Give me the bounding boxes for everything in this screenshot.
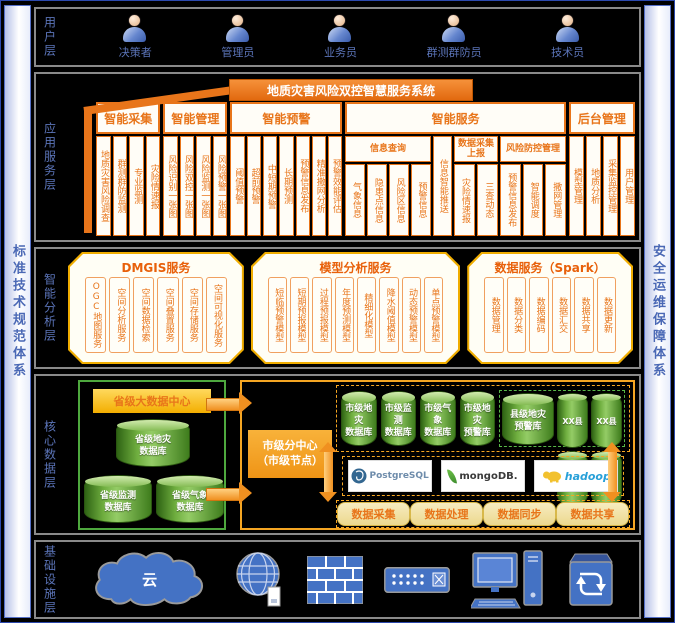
user-roles: 决策者 管理员 业务员 群测群防员 技术员 <box>64 9 639 65</box>
user-layer: 用户层 决策者 管理员 业务员 群测群防员 技术员 <box>34 7 641 67</box>
function-chip: 数据共享 <box>556 502 629 526</box>
analysis-column: 年度预测模型 <box>335 277 354 353</box>
architecture-diagram: 标准技术规范体系 安全运维保障体系 用户层 决策者 管理员 业务员 群测群防员 <box>0 0 675 623</box>
city-database-row: 市级地灾 数据库 市级监测 数据库 市级气象 数据库 市级地灾 预警库 县级地灾… <box>336 385 630 452</box>
app-column: 专业监测 <box>129 136 144 236</box>
firewall-icon <box>307 556 363 604</box>
core-layer-label: 核心数据层 <box>36 376 64 533</box>
model-analysis-container: 模型分析服务 短临预警模型 短期预报模型 过程预报模型 年度预测模型 精细化模型… <box>251 252 460 364</box>
analysis-column: 数据汇交 <box>552 277 571 353</box>
app-column: 风险监测一张图 <box>196 136 211 236</box>
platform-row: PostgreSQL mongoDB. hadoop <box>342 456 624 496</box>
sync-arrow-left <box>324 452 333 492</box>
flow-arrow-right-bottom <box>206 488 240 501</box>
dmgis-service-container: DMGIS服务 OGC地图服务 空间分析服务 空间数据检索 空间叠置服务 空间存… <box>68 252 244 364</box>
group-smart-warning: 智能预警 阈值预警 超前预警 中短期预警 长期预测 预警信息发布 精准撒网分析 … <box>230 102 342 236</box>
analysis-column: 短期预报模型 <box>290 277 309 353</box>
analysis-layer: 智能分析层 DMGIS服务 OGC地图服务 空间分析服务 空间数据检索 空间叠置… <box>34 247 641 369</box>
role-administrator: 管理员 <box>221 15 254 60</box>
app-column: 气象信息 <box>345 164 365 236</box>
container-title: 模型分析服务 <box>253 257 458 277</box>
city-center-label: 市级分中心 （市级节点） <box>248 430 332 478</box>
app-column: 预警效能评估 <box>328 136 342 236</box>
app-column: 模型管理 <box>569 136 584 236</box>
core-data-layer: 核心数据层 省级大数据中心 省级地灾 数据库 省级监测 数据库 省级气象 数据库… <box>34 374 641 535</box>
app-column: 超前预警 <box>247 136 261 236</box>
data-function-row: 数据采集 数据处理 数据同步 数据共享 <box>336 500 630 528</box>
role-label: 决策者 <box>119 44 152 60</box>
group-title: 智能管理 <box>163 102 227 134</box>
app-groups: 智能采集 地质灾害风险调查 群测群防监测 专业监测 灾险情速报 智能管理 风险识… <box>96 102 635 236</box>
analysis-column: OGC地图服务 <box>85 277 106 353</box>
subgroup-title: 信息查询 <box>345 136 430 162</box>
system-title-banner: 地质灾害风险双控智慧服务系统 <box>229 79 473 101</box>
server-rack-icon <box>384 567 450 593</box>
analysis-column: 精细化模型 <box>357 277 376 353</box>
analysis-column: 数据编码 <box>529 277 548 353</box>
mongodb-leaf-icon <box>447 468 457 484</box>
app-column: 风险区信息 <box>389 164 409 236</box>
group-title: 智能预警 <box>230 102 342 134</box>
app-column: 预警信息 <box>411 164 431 236</box>
container-title: DMGIS服务 <box>70 257 242 277</box>
role-decision-maker: 决策者 <box>119 15 152 60</box>
role-label: 群测群防员 <box>427 44 482 60</box>
person-icon <box>442 15 466 42</box>
analysis-column: 过程预报模型 <box>312 277 331 353</box>
analysis-column: 空间可视化服务 <box>206 277 227 353</box>
analysis-column: 数据更新 <box>597 277 616 353</box>
person-icon <box>556 15 580 42</box>
app-column: 隐患点信息 <box>367 164 387 236</box>
subgroup-risk-control: 风险防控管理 预警信息发布 智能调度 撒网管理 <box>500 136 566 236</box>
database-cylinder: 省级监测 数据库 <box>84 475 152 523</box>
app-column: 灾险情速报 <box>146 136 161 236</box>
sync-arrow-right <box>608 452 617 492</box>
hadoop-elephant-icon <box>542 469 562 483</box>
app-column: 预警信息发布 <box>296 136 310 236</box>
app-layer-label: 应用服务层 <box>36 74 64 240</box>
data-service-spark-container: 数据服务（Spark） 数据管理 数据分类 数据编码 数据汇交 数据共享 数据更… <box>467 252 633 364</box>
analysis-column: 空间分析服务 <box>109 277 130 353</box>
analysis-column: 动态预警模型 <box>402 277 421 353</box>
database-cylinder: 省级地灾 数据库 <box>116 419 190 467</box>
database-cylinder: 市级监测 数据库 <box>381 391 417 446</box>
app-column: 风险识别一张图 <box>163 136 178 236</box>
app-column: 地质灾害风险调查 <box>96 136 111 236</box>
role-clerk: 业务员 <box>324 15 357 60</box>
analysis-layer-label: 智能分析层 <box>36 249 64 367</box>
subgroup-data-report: 数据采集上报 灾险情速报 三查动态 <box>454 136 499 236</box>
group-title: 智能服务 <box>345 102 565 134</box>
analysis-column: 降水阈值模型 <box>379 277 398 353</box>
container-title: 数据服务（Spark） <box>469 257 631 277</box>
database-cylinder: 县级地灾 预警库 <box>502 393 554 445</box>
province-center-title: 省级大数据中心 <box>93 389 211 413</box>
database-cylinder: 市级地灾 数据库 <box>341 391 377 446</box>
database-cylinder: 市级气象 数据库 <box>420 391 456 446</box>
database-cylinder: XX县 <box>557 393 588 448</box>
subgroup-title: 数据采集上报 <box>454 136 499 162</box>
group-smart-collection: 智能采集 地质灾害风险调查 群测群防监测 专业监测 灾险情速报 <box>96 102 160 236</box>
role-label: 业务员 <box>324 44 357 60</box>
left-rail: 标准技术规范体系 <box>4 5 31 618</box>
postgresql-elephant-icon <box>351 468 367 484</box>
database-cylinder: 市级地灾 预警库 <box>460 391 496 446</box>
function-chip: 数据采集 <box>337 502 410 526</box>
city-sub-center: 市级分中心 （市级节点） 市级地灾 数据库 市级监测 数据库 市级气象 数据库 … <box>240 380 635 530</box>
subgroup-title: 风险防控管理 <box>500 136 566 162</box>
group-backend-admin: 后台管理 模型管理 地质分析 采集监控管理 用户管理 <box>569 102 635 236</box>
analysis-column: 数据管理 <box>484 277 503 353</box>
infra-layer-label: 基础设施层 <box>36 542 64 617</box>
app-column: 中短期预警 <box>263 136 277 236</box>
app-column: 撒网管理 <box>545 164 566 236</box>
role-monitoring-member: 群测群防员 <box>427 15 482 60</box>
left-rail-label: 标准技术规范体系 <box>8 244 27 380</box>
app-column: 风险预警一张图 <box>213 136 228 236</box>
cloud-icon: 云 <box>87 549 213 611</box>
group-title: 后台管理 <box>569 102 635 134</box>
analysis-column: 短临预警模型 <box>268 277 287 353</box>
flow-arrow-right-top <box>206 398 240 411</box>
person-icon <box>123 15 147 42</box>
cloud-label: 云 <box>87 569 213 590</box>
province-big-data-center: 省级大数据中心 省级地灾 数据库 省级监测 数据库 省级气象 数据库 <box>78 380 226 530</box>
app-column: 群测群防监测 <box>113 136 128 236</box>
group-smart-service: 智能服务 信息查询 气象信息 隐患点信息 风险区信息 预警信息 信息智能推送 <box>345 102 565 236</box>
app-column: 采集监控管理 <box>603 136 618 236</box>
mongodb-logo: mongoDB. <box>441 460 525 492</box>
app-column: 风险双控一张图 <box>180 136 195 236</box>
app-column: 阈值预警 <box>230 136 244 236</box>
app-column: 长期预测 <box>279 136 293 236</box>
analysis-column: 空间叠置服务 <box>157 277 178 353</box>
analysis-column: 数据共享 <box>574 277 593 353</box>
database-cylinder: XX县 <box>591 393 622 448</box>
person-icon <box>328 15 352 42</box>
app-column: 精准撒网分析 <box>312 136 326 236</box>
right-rail: 安全运维保障体系 <box>644 5 671 618</box>
function-chip: 数据同步 <box>483 502 556 526</box>
analysis-column: 空间数据检索 <box>133 277 154 353</box>
internet-globe-icon <box>234 551 286 609</box>
app-column: 智能调度 <box>523 164 544 236</box>
app-column: 用户管理 <box>620 136 635 236</box>
desktop-computer-icon <box>471 549 545 611</box>
analysis-column: 数据分类 <box>507 277 526 353</box>
role-label: 技术员 <box>551 44 584 60</box>
banner-ribbon-vertical <box>84 107 92 233</box>
infrastructure-layer: 基础设施层 云 <box>34 540 641 619</box>
right-rail-label: 安全运维保障体系 <box>648 244 667 380</box>
user-layer-label: 用户层 <box>36 9 64 65</box>
app-column: 灾险情速报 <box>454 164 475 236</box>
app-column-info-push: 信息智能推送 <box>433 136 452 236</box>
app-service-layer: 应用服务层 地质灾害风险双控智慧服务系统 智能采集 地质灾害风险调查 群测群防监… <box>34 72 641 242</box>
subgroup-info-query: 信息查询 气象信息 隐患点信息 风险区信息 预警信息 <box>345 136 430 236</box>
county-database-group: 县级地灾 预警库 XX县 XX县 XX县 XX县 <box>499 390 625 447</box>
network-switch-icon <box>566 552 616 608</box>
app-column: 地质分析 <box>586 136 601 236</box>
app-column: 三查动态 <box>477 164 498 236</box>
analysis-column: 空间存储服务 <box>182 277 203 353</box>
analysis-column: 单点预警模型 <box>424 277 443 353</box>
hadoop-logo: hadoop <box>534 460 618 492</box>
postgresql-logo: PostgreSQL <box>348 460 432 492</box>
function-chip: 数据处理 <box>410 502 483 526</box>
role-label: 管理员 <box>221 44 254 60</box>
group-smart-management: 智能管理 风险识别一张图 风险双控一张图 风险监测一张图 风险预警一张图 <box>163 102 227 236</box>
role-technician: 技术员 <box>551 15 584 60</box>
person-icon <box>226 15 250 42</box>
app-column: 预警信息发布 <box>500 164 521 236</box>
